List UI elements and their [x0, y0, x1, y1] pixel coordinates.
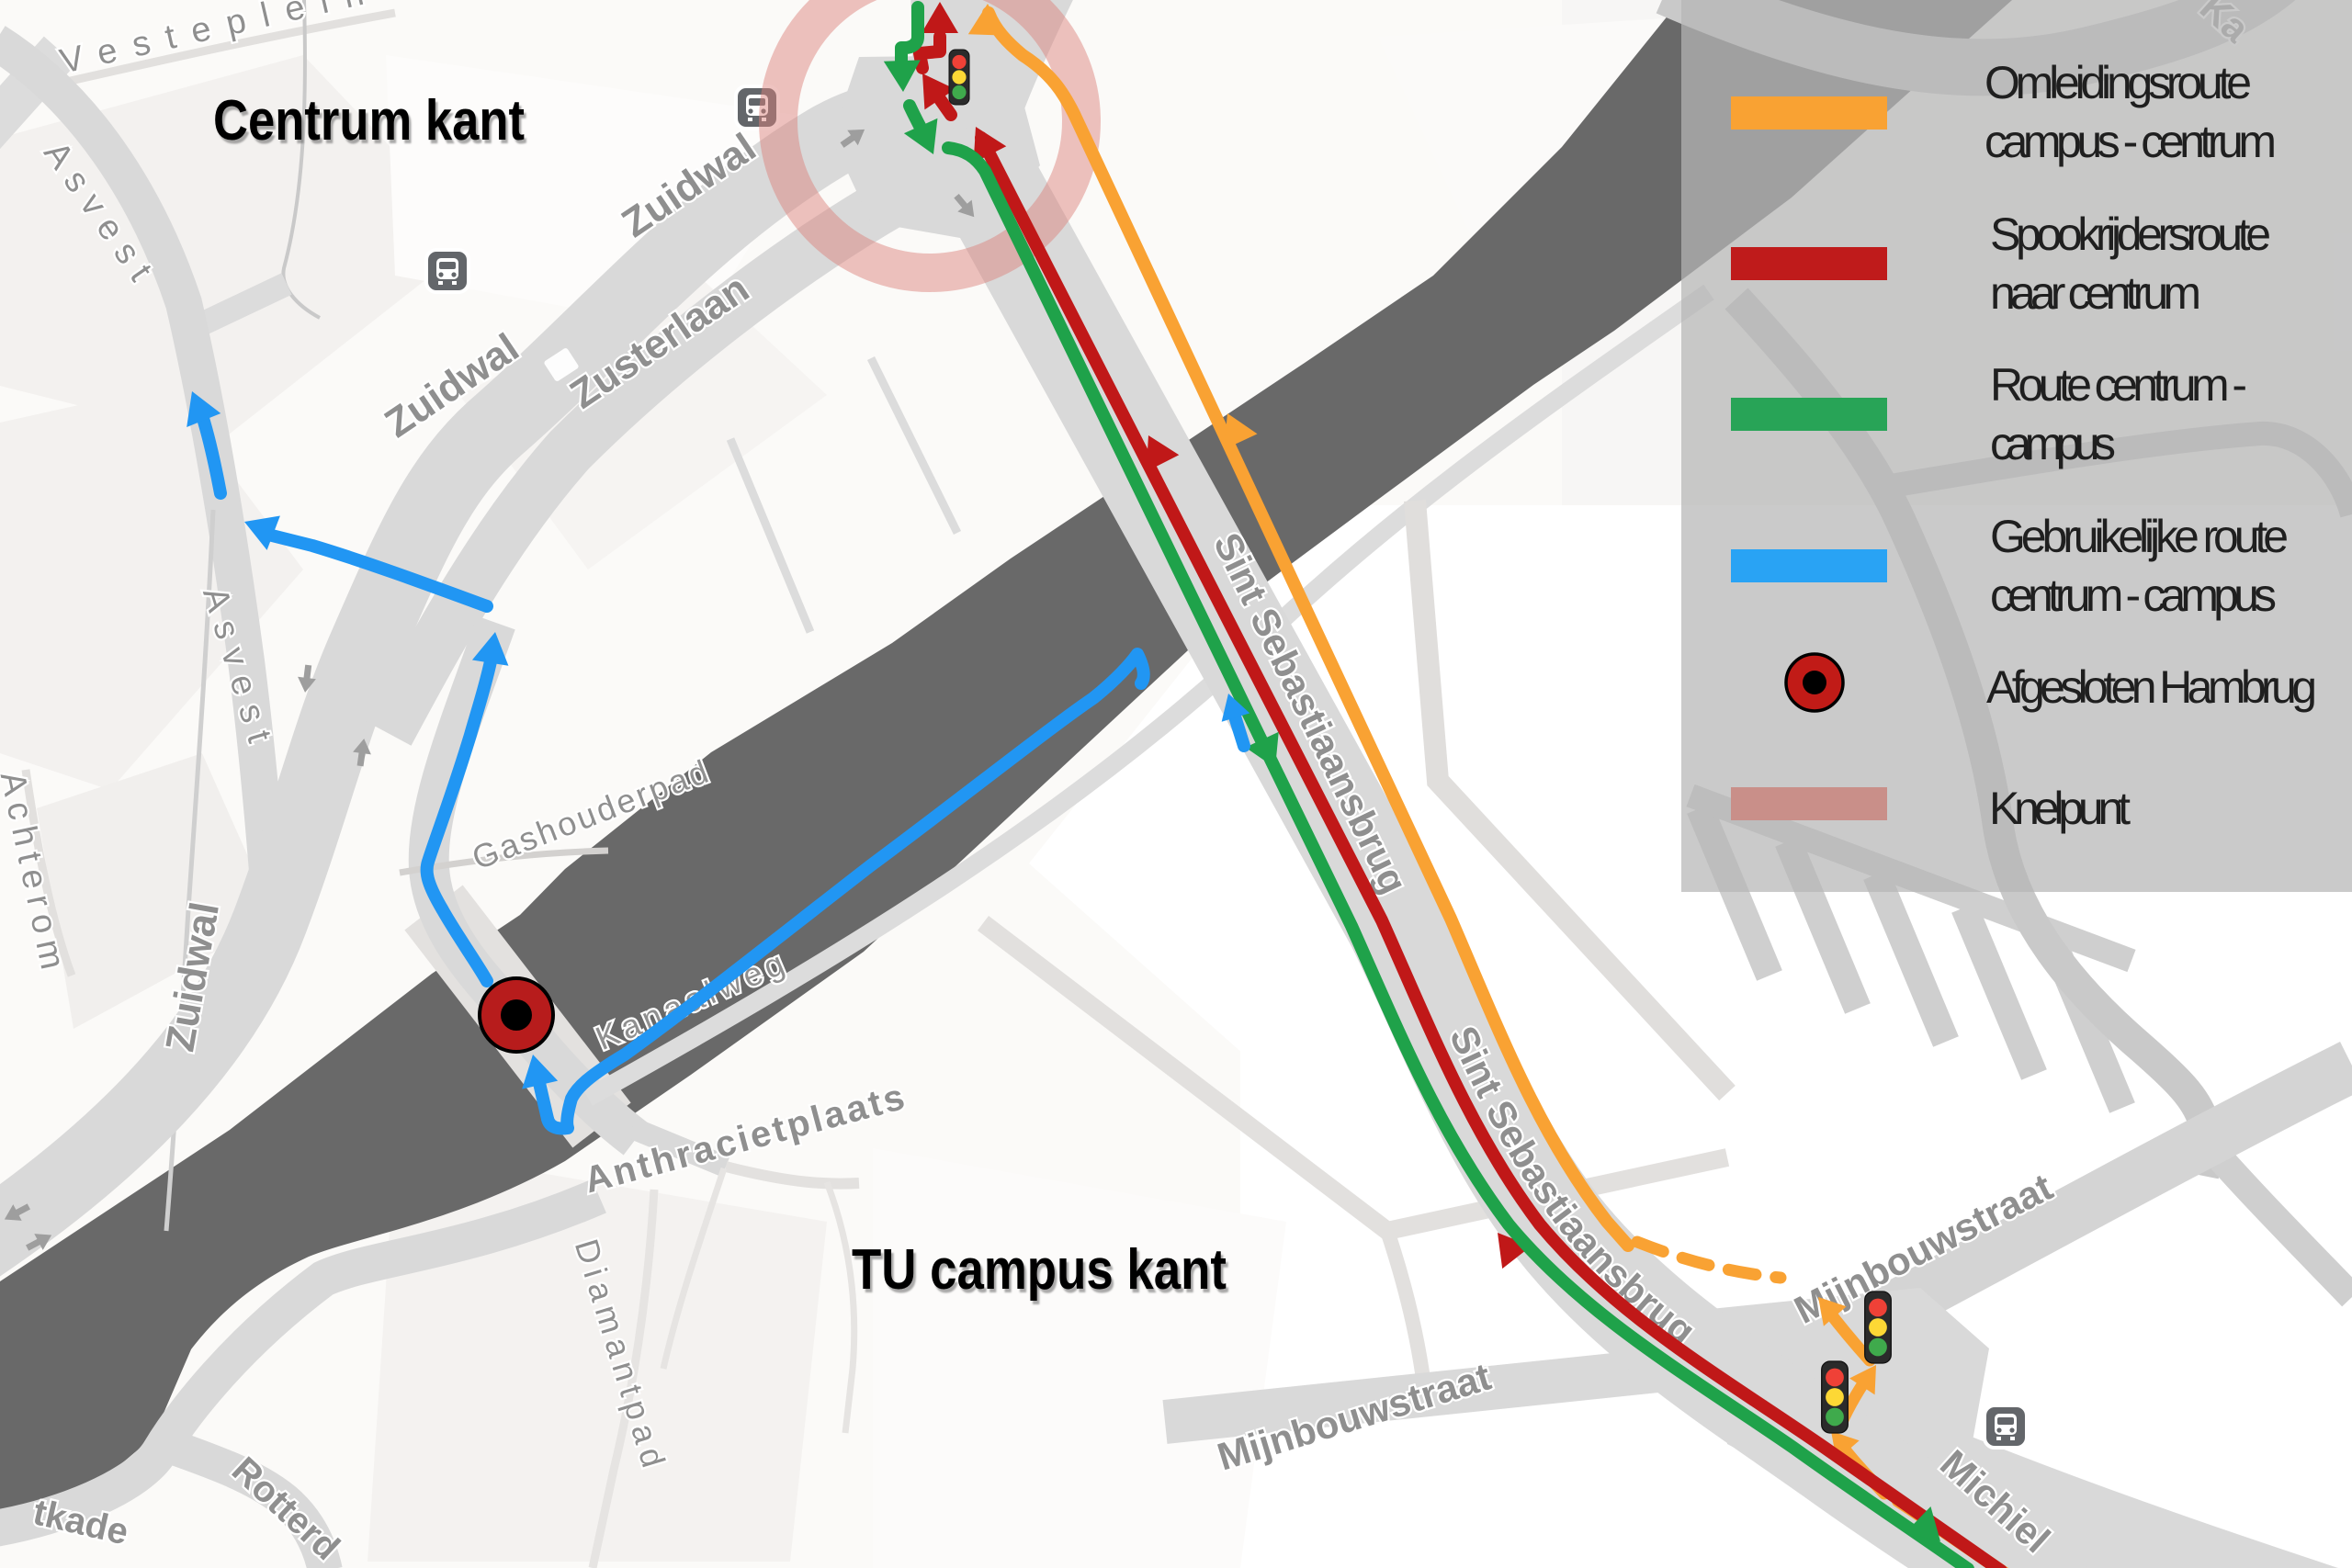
svg-text:naar centrum: naar centrum [1990, 267, 2201, 319]
svg-text:campus: campus [1990, 418, 2116, 469]
svg-text:Spookrijdersroute: Spookrijdersroute [1990, 209, 2271, 260]
svg-text:centrum - campus: centrum - campus [1990, 570, 2277, 621]
svg-text:TU campus kant: TU campus kant [852, 1238, 1227, 1302]
svg-text:Centrum kant: Centrum kant [213, 89, 525, 152]
svg-text:Afgesloten Hambrug: Afgesloten Hambrug [1986, 661, 2317, 713]
svg-text:Knelpunt: Knelpunt [1989, 783, 2131, 834]
svg-text:campus - centrum: campus - centrum [1984, 116, 2277, 167]
svg-text:Route centrum -: Route centrum - [1990, 359, 2247, 411]
svg-text:Omleidingsroute: Omleidingsroute [1984, 57, 2252, 108]
svg-text:Gebruikelijke route: Gebruikelijke route [1990, 511, 2289, 562]
